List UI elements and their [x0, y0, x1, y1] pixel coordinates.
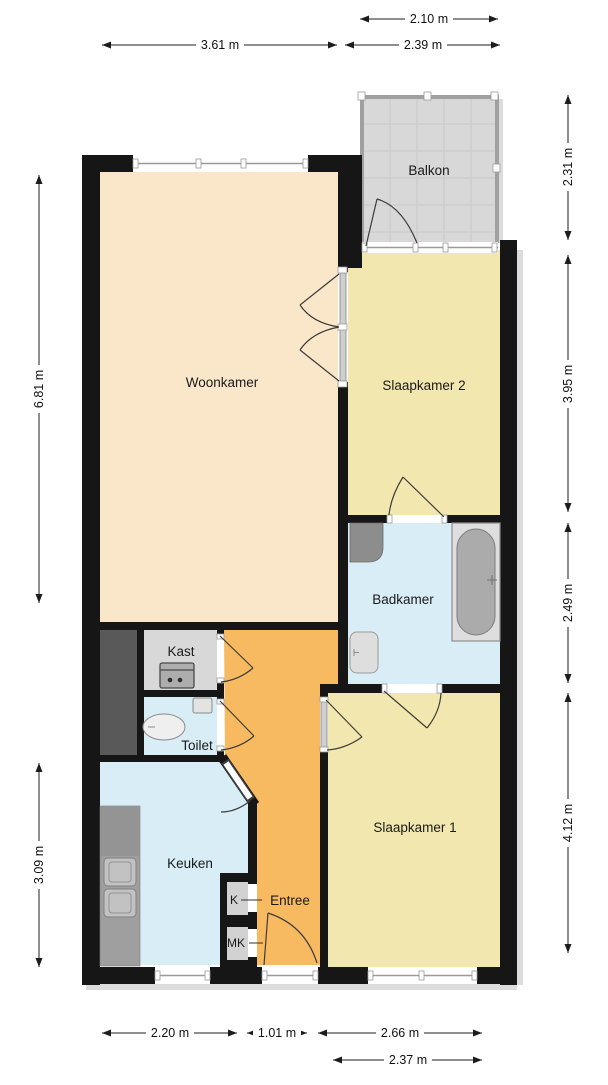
- svg-text:3.61 m: 3.61 m: [201, 38, 239, 52]
- label-entree: Entree: [270, 893, 310, 908]
- railing-post: [424, 92, 431, 100]
- label-balkon: Balkon: [408, 163, 449, 178]
- shaft: [100, 630, 137, 755]
- label-slaapkamer-1: Slaapkamer 1: [373, 820, 456, 835]
- wall-left: [82, 155, 100, 985]
- label-slaapkamer-2: Slaapkamer 2: [382, 378, 465, 393]
- label-kast: Kast: [167, 644, 194, 659]
- dimension-bottom-entree: 1.01 m: [247, 1026, 307, 1040]
- k-door-sill: [248, 884, 257, 912]
- svg-text:2.66 m: 2.66 m: [381, 1026, 419, 1040]
- svg-text:2.20 m: 2.20 m: [151, 1026, 189, 1040]
- wall-woonkamer-badkamer: [338, 382, 348, 684]
- svg-text:2.10 m: 2.10 m: [410, 12, 448, 26]
- shadow-right: [517, 250, 523, 985]
- svg-text:2.37 m: 2.37 m: [389, 1053, 427, 1067]
- svg-text:2.31 m: 2.31 m: [561, 148, 575, 186]
- window-woonkamer: [133, 155, 308, 172]
- wall-right: [500, 240, 517, 985]
- railing-post: [491, 92, 498, 100]
- floorplan-page: Woonkamer Slaapkamer 2 Slaapkamer 1 Badk…: [0, 0, 608, 1080]
- window-balkon-band: [362, 242, 498, 253]
- wall-kast-toilet: [137, 690, 224, 697]
- svg-text:1.01 m: 1.01 m: [258, 1026, 296, 1040]
- railing-post: [493, 164, 500, 172]
- label-mk: MK: [227, 936, 245, 950]
- svg-text:6.81 m: 6.81 m: [32, 370, 46, 408]
- shadow-bottom: [86, 984, 517, 990]
- label-keuken: Keuken: [167, 856, 213, 871]
- shower: [350, 523, 383, 562]
- railing-post: [358, 92, 365, 100]
- front-door-opening: [262, 967, 318, 984]
- wall-under-woonkamer: [82, 622, 346, 630]
- kitchen-counter: [100, 806, 140, 966]
- label-woonkamer: Woonkamer: [186, 375, 259, 390]
- label-k: K: [230, 893, 238, 907]
- svg-text:2.49 m: 2.49 m: [561, 584, 575, 622]
- washing-machine: [160, 663, 194, 688]
- badkamer-sink: [350, 632, 378, 673]
- bathtub: [452, 523, 500, 641]
- svg-text:4.12 m: 4.12 m: [561, 804, 575, 842]
- svg-text:2.39 m: 2.39 m: [404, 38, 442, 52]
- window-keuken: [155, 967, 210, 984]
- svg-text:3.95 m: 3.95 m: [561, 365, 575, 403]
- label-toilet: Toilet: [181, 738, 213, 753]
- svg-text:3.09 m: 3.09 m: [32, 846, 46, 884]
- floorplan-canvas: Woonkamer Slaapkamer 2 Slaapkamer 1 Badk…: [0, 0, 608, 1080]
- window-slaapkamer-1: [368, 967, 477, 984]
- wall-toilet-keuken: [98, 755, 224, 762]
- wall-keuken-entree: [248, 802, 257, 875]
- label-badkamer: Badkamer: [372, 592, 434, 607]
- room-woonkamer: [100, 172, 338, 622]
